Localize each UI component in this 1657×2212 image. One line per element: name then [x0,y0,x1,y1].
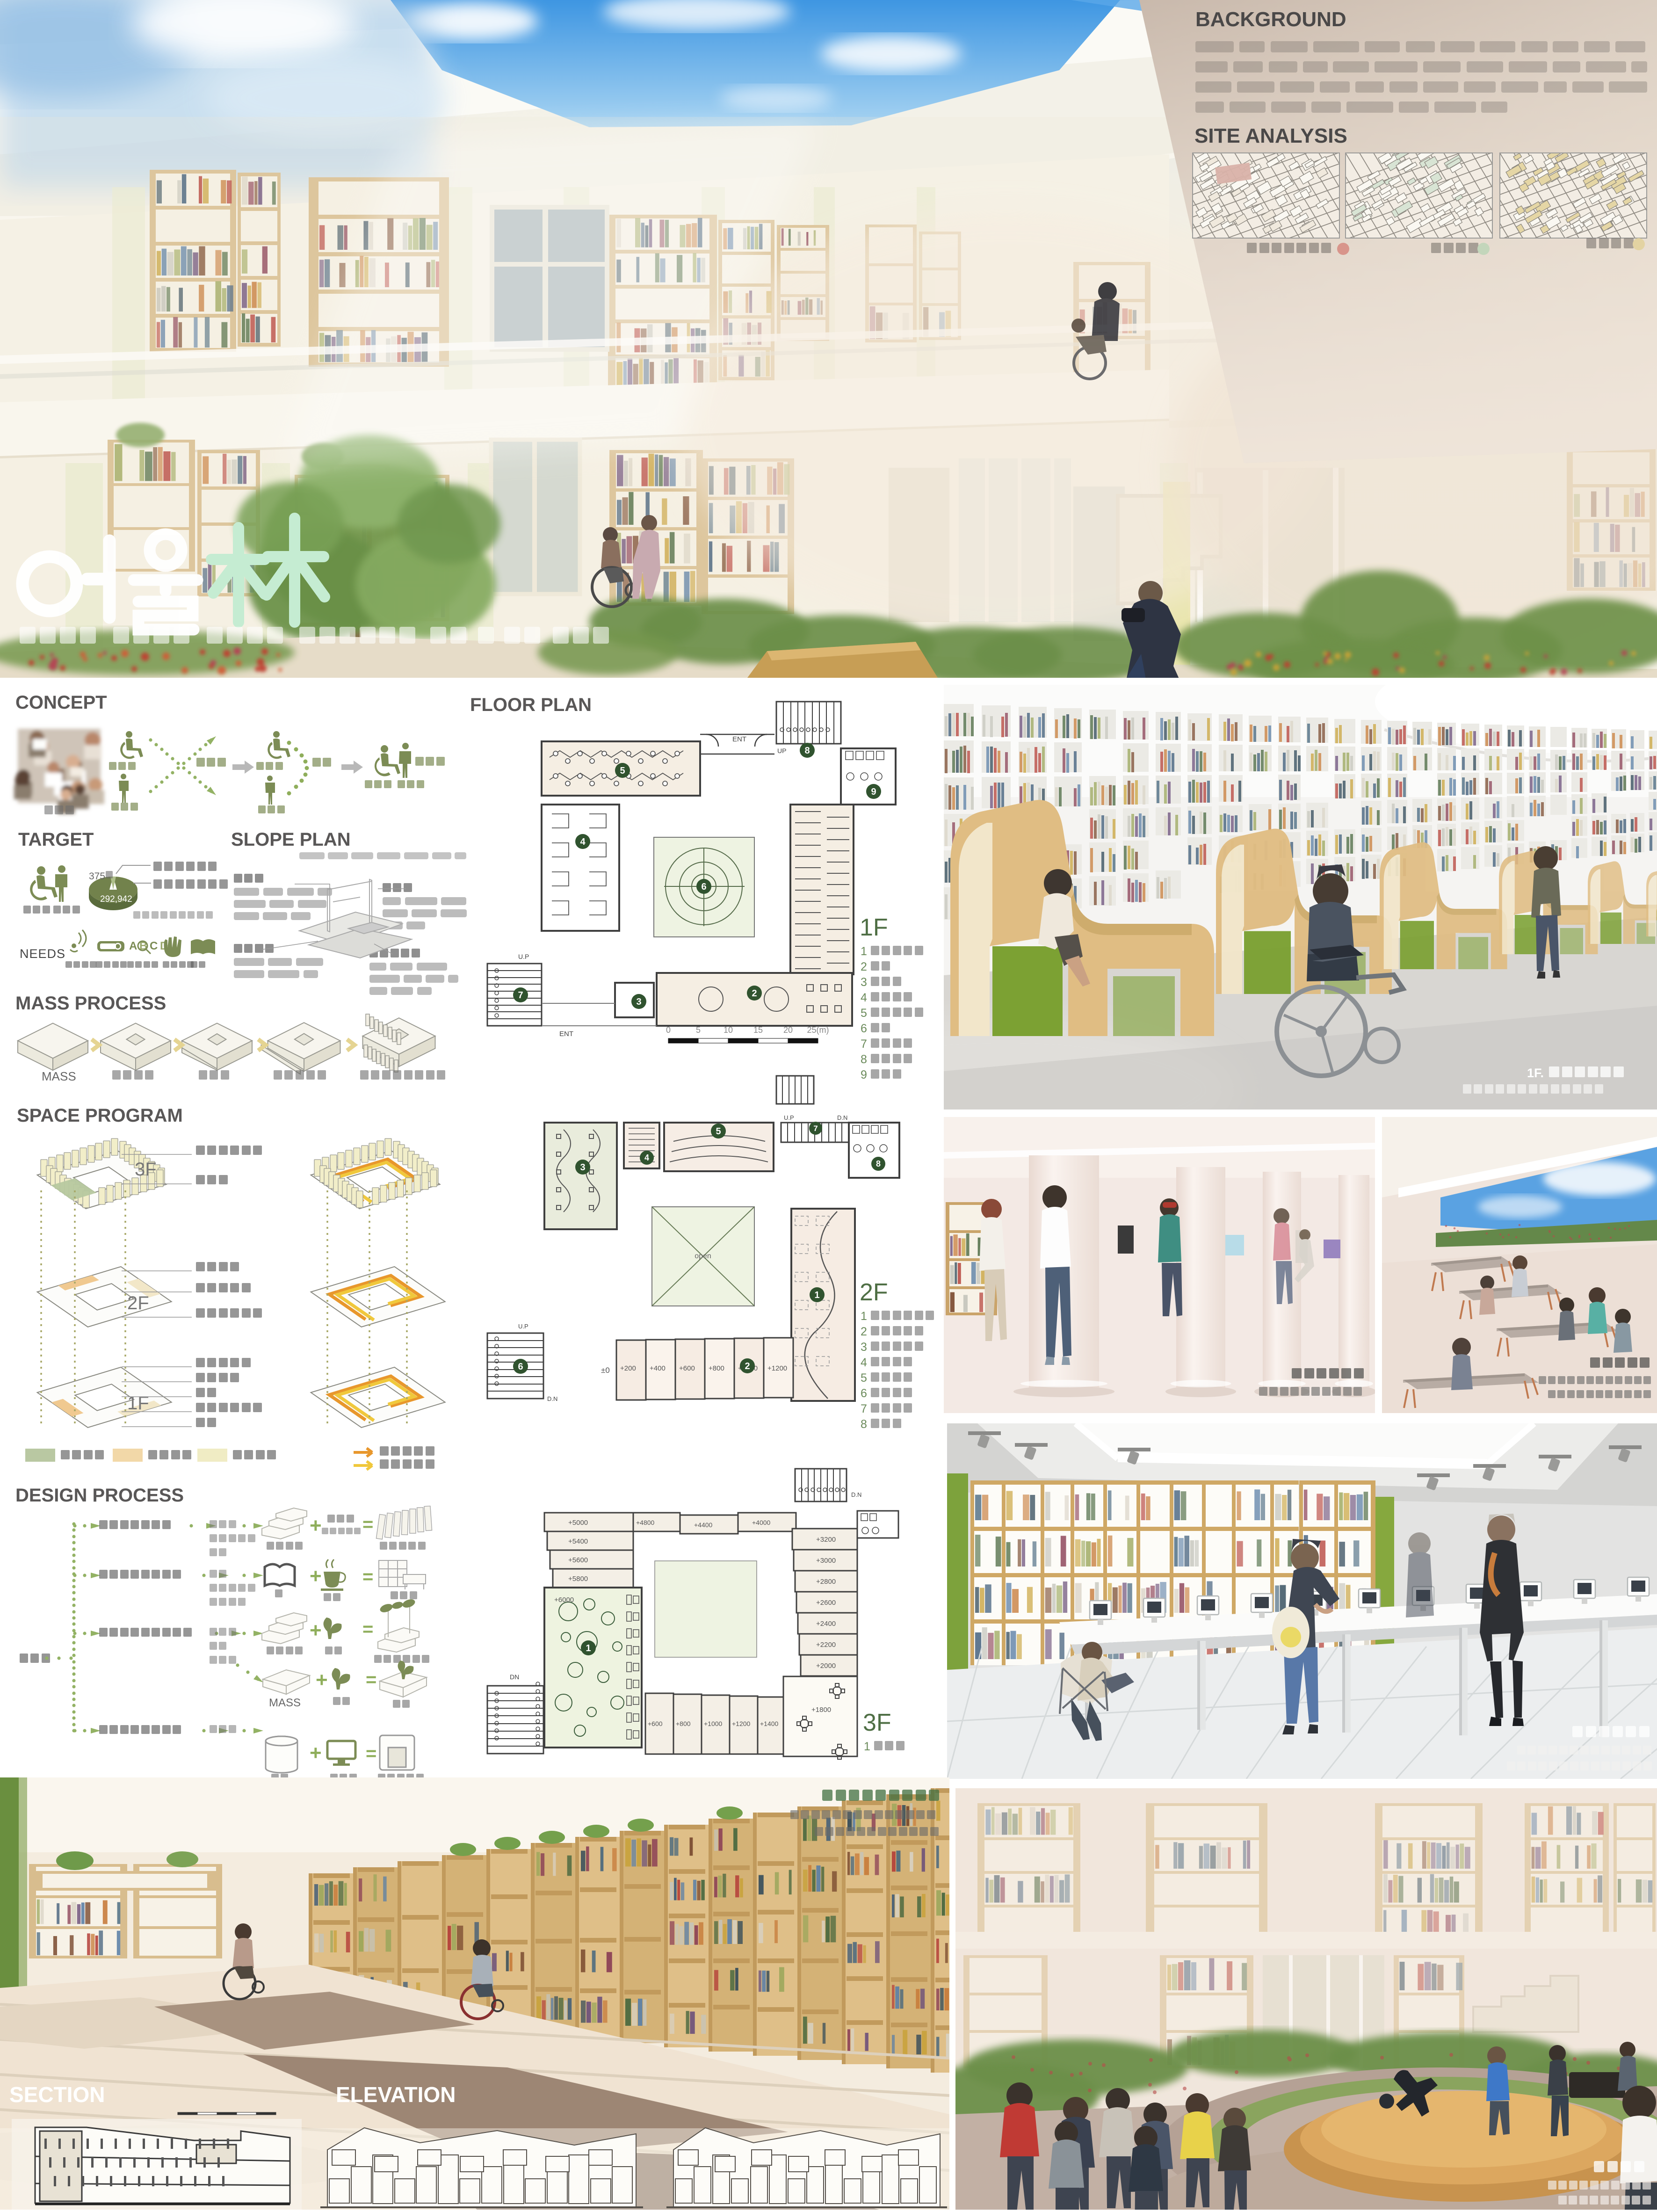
svg-text:+: + [310,1741,322,1764]
svg-text:MASS: MASS [269,1697,301,1709]
svg-text:+5400: +5400 [568,1538,588,1545]
svg-text:8: 8 [804,746,810,756]
svg-text:8: 8 [876,1159,881,1168]
svg-text:8: 8 [861,1053,867,1066]
svg-text:+4800: +4800 [636,1519,655,1526]
svg-text:open: open [695,1252,711,1260]
svg-text:+5000: +5000 [568,1519,588,1527]
svg-text:A: A [129,940,137,952]
svg-text:+: + [310,1619,322,1642]
svg-text:SPACE PROGRAM: SPACE PROGRAM [17,1105,183,1126]
svg-text:MASS PROCESS: MASS PROCESS [15,993,166,1014]
svg-text:+400: +400 [650,1364,666,1372]
svg-text:6: 6 [518,1362,523,1372]
svg-text:+: + [316,1668,328,1691]
svg-text:375: 375 [89,871,105,882]
svg-text:CONCEPT: CONCEPT [15,692,107,713]
svg-text:=: = [362,1619,373,1639]
svg-text:4: 4 [861,991,867,1004]
svg-text:D.N: D.N [837,1114,847,1121]
svg-text:=: = [366,1669,376,1690]
svg-text:1F.: 1F. [1527,1066,1544,1080]
svg-text:+800: +800 [709,1364,724,1372]
svg-text:3: 3 [861,976,867,989]
svg-text:=: = [366,1743,376,1764]
svg-text:D.N: D.N [547,1395,557,1402]
svg-text:3: 3 [580,1162,585,1173]
svg-text:2F: 2F [127,1293,149,1313]
svg-text:+1800: +1800 [811,1706,831,1714]
svg-text:+1400: +1400 [760,1720,779,1727]
svg-text:7: 7 [813,1124,818,1133]
svg-text:3F: 3F [863,1709,891,1736]
svg-text:5: 5 [696,1025,701,1035]
svg-text:ENT: ENT [559,1030,573,1038]
svg-text:C: C [150,940,158,952]
svg-text:ENT: ENT [732,735,746,743]
svg-text:+5800: +5800 [568,1575,588,1583]
svg-text:DESIGN PROCESS: DESIGN PROCESS [15,1485,184,1506]
svg-text:=: = [362,1567,373,1587]
svg-text:4: 4 [861,1356,867,1369]
svg-text:0: 0 [666,1025,671,1035]
svg-text:7: 7 [861,1037,867,1051]
svg-text:D.N: D.N [851,1491,861,1498]
svg-text:2: 2 [861,1325,867,1338]
svg-text:9: 9 [871,787,876,797]
svg-text:+1000: +1000 [704,1720,723,1727]
svg-text:SECTION: SECTION [9,2082,105,2107]
svg-text:DN: DN [510,1673,519,1681]
svg-text:+800: +800 [676,1720,691,1727]
svg-text:25(m): 25(m) [807,1025,829,1035]
svg-text:3: 3 [861,1341,867,1354]
svg-text:U.P: U.P [518,953,529,960]
svg-text:1: 1 [586,1643,591,1654]
svg-text:3F: 3F [135,1159,157,1180]
svg-text:+: + [310,1565,322,1588]
svg-text:+5600: +5600 [568,1556,588,1564]
svg-text:1: 1 [814,1290,819,1300]
svg-text:+2000: +2000 [816,1662,836,1670]
svg-text:±0: ±0 [601,1366,610,1375]
svg-text:+4000: +4000 [752,1519,771,1526]
svg-text:NEEDS: NEEDS [20,947,65,961]
svg-text:7: 7 [861,1402,867,1415]
svg-text:SITE ANALYSIS: SITE ANALYSIS [1194,124,1347,147]
svg-text:SLOPE PLAN: SLOPE PLAN [231,829,351,850]
svg-text:6: 6 [701,882,706,892]
svg-text:U.P: U.P [518,1323,528,1330]
svg-text:UP: UP [777,747,786,754]
svg-text:+600: +600 [648,1720,663,1727]
svg-text:U.P: U.P [784,1114,794,1121]
svg-text:1: 1 [861,945,867,958]
svg-text:3: 3 [636,997,641,1007]
svg-text:ELEVATION: ELEVATION [336,2082,456,2107]
svg-text:2: 2 [752,988,757,999]
svg-text:4: 4 [644,1153,649,1162]
svg-text:+1200: +1200 [732,1720,751,1727]
svg-text:1: 1 [864,1740,870,1753]
svg-text:+2400: +2400 [816,1620,836,1628]
svg-text:1: 1 [861,1310,867,1323]
svg-text:TARGET: TARGET [18,829,94,850]
svg-text:+6000: +6000 [554,1596,574,1604]
svg-text:+4400: +4400 [694,1521,713,1529]
svg-text:MASS: MASS [42,1069,76,1083]
svg-text:4: 4 [580,837,586,847]
svg-text:1F: 1F [127,1393,149,1414]
svg-text:2: 2 [745,1361,750,1371]
svg-text:+2600: +2600 [816,1599,836,1607]
svg-text:15: 15 [753,1025,763,1035]
svg-text:+3000: +3000 [816,1557,836,1565]
svg-text:8: 8 [861,1418,867,1431]
svg-text:+: + [310,1514,322,1537]
svg-text:+1200: +1200 [767,1364,787,1372]
svg-text:6: 6 [861,1022,867,1035]
svg-text:FLOOR PLAN: FLOOR PLAN [470,695,592,715]
svg-text:+2200: +2200 [816,1641,836,1649]
svg-text:+3200: +3200 [816,1536,836,1544]
svg-text:2: 2 [861,960,867,973]
svg-text:9: 9 [861,1068,867,1081]
svg-text:BACKGROUND: BACKGROUND [1195,8,1346,31]
svg-text:+200: +200 [620,1364,636,1372]
svg-text:5: 5 [861,1007,867,1020]
svg-text:=: = [362,1514,373,1535]
svg-text:20: 20 [783,1025,793,1035]
svg-text:7: 7 [518,990,523,1001]
svg-text:2F: 2F [860,1279,888,1306]
svg-text:1F: 1F [860,914,888,941]
svg-text:+2800: +2800 [816,1578,836,1586]
svg-text:292,942: 292,942 [100,894,132,904]
svg-text:5: 5 [861,1371,867,1385]
svg-text:5: 5 [716,1126,721,1137]
svg-text:6: 6 [861,1387,867,1400]
svg-text:+600: +600 [679,1364,695,1372]
svg-text:5: 5 [620,766,625,776]
svg-text:10: 10 [724,1025,733,1035]
